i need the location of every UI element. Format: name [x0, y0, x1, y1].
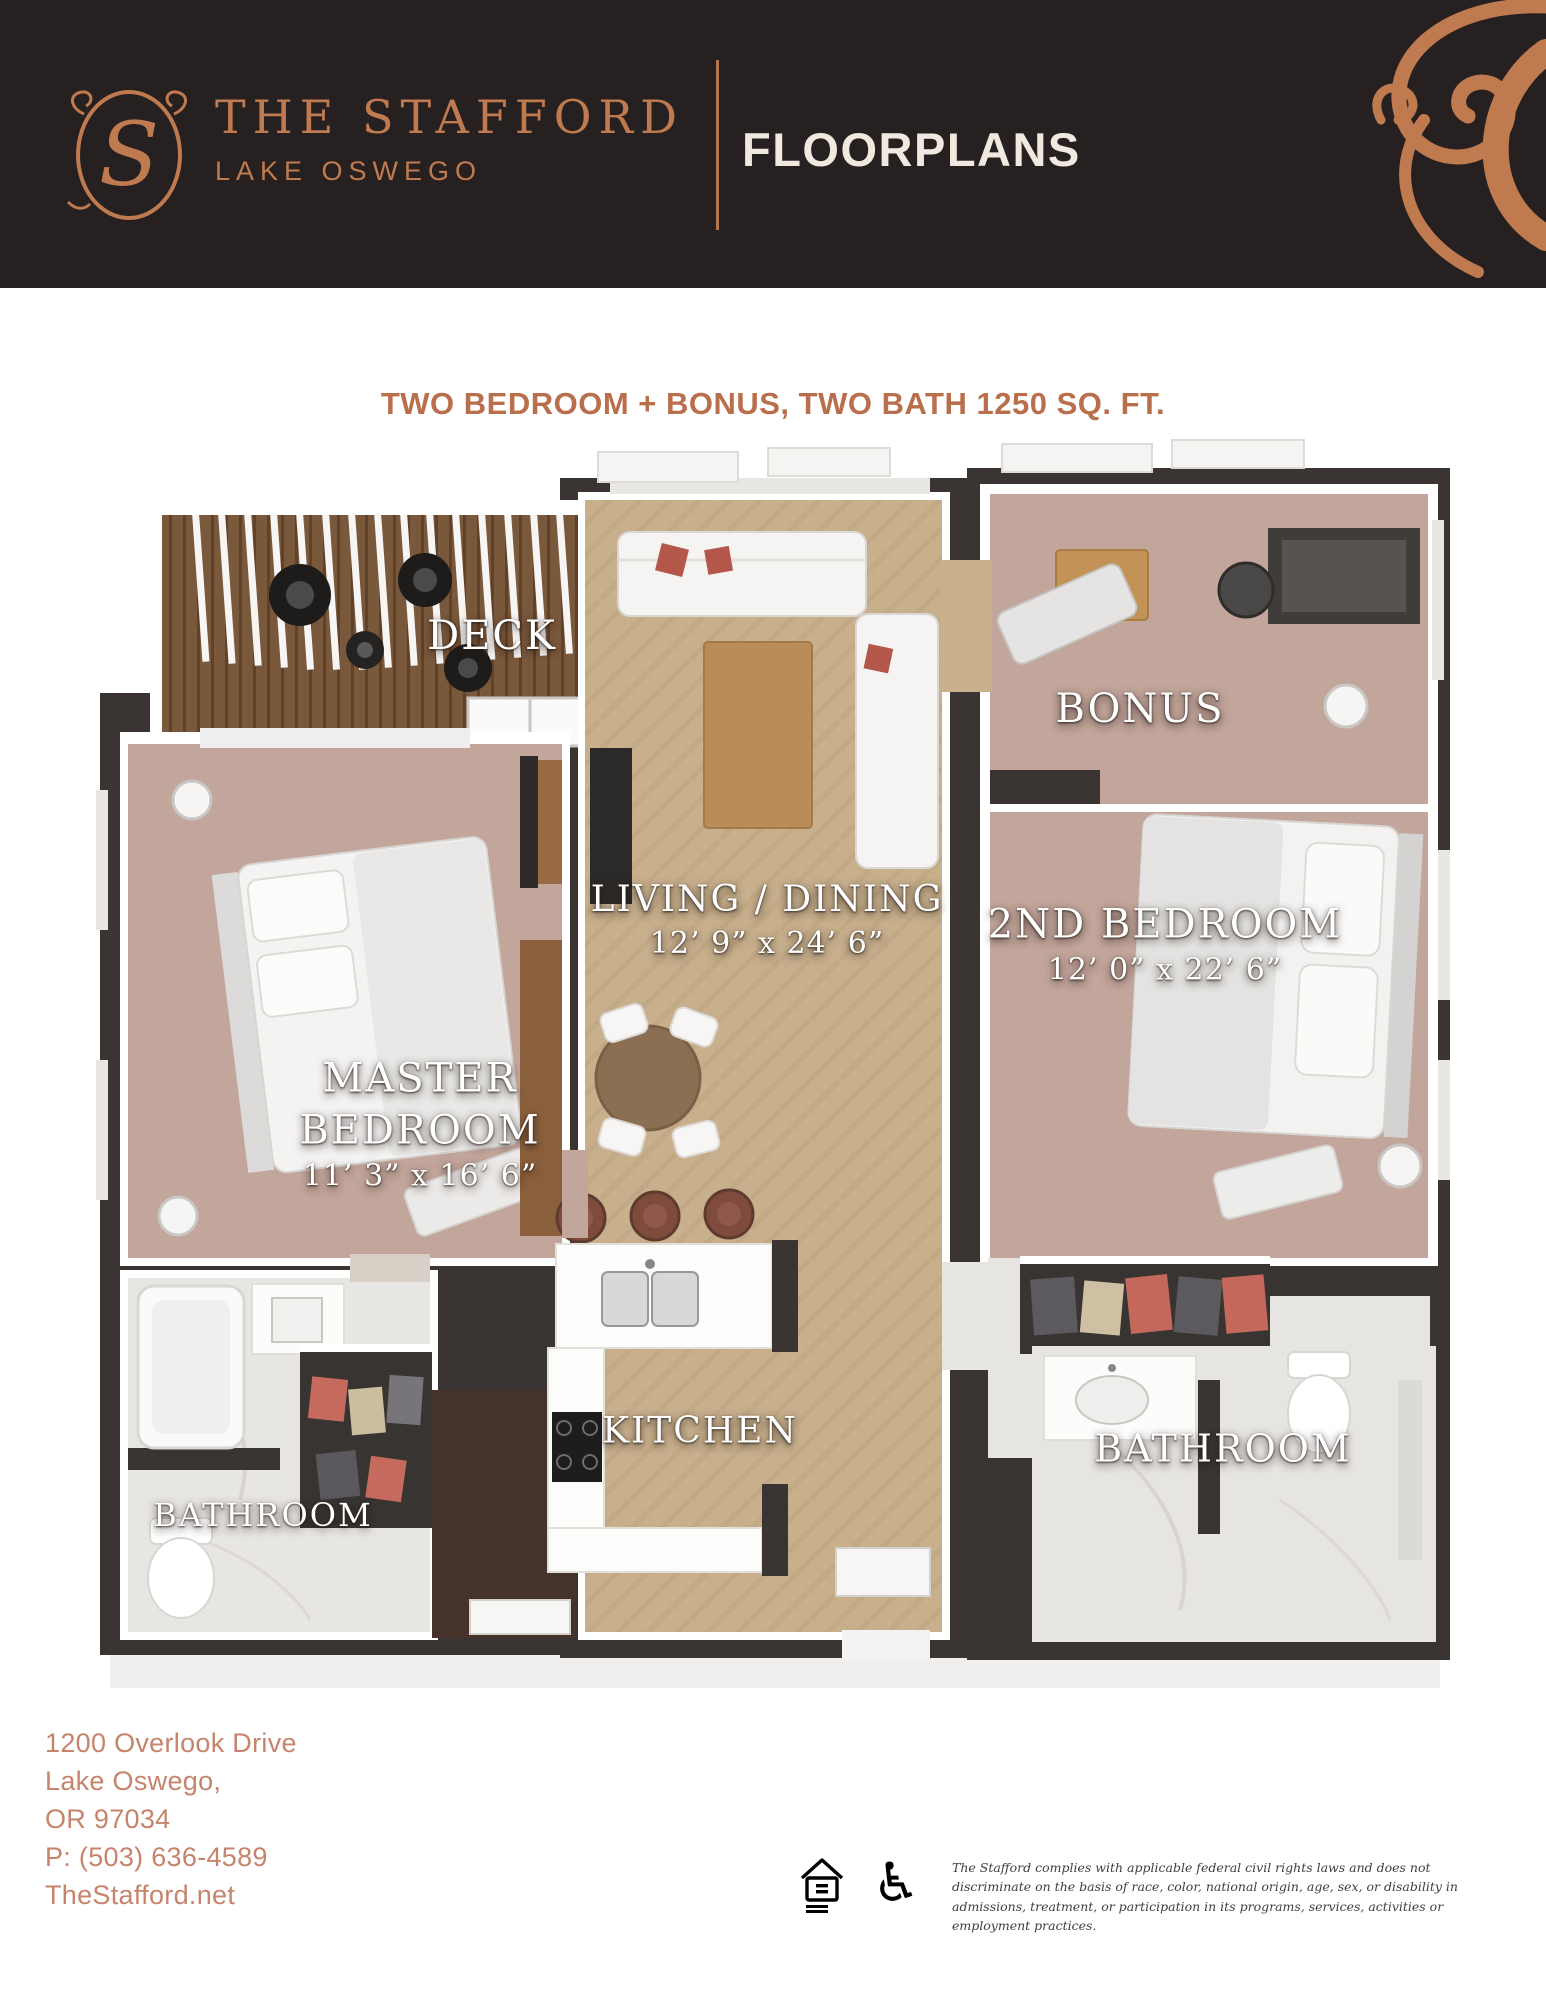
- bath-doorway: [350, 1254, 430, 1282]
- room-name: LIVING / DINING: [591, 877, 944, 924]
- floorplan-image: DECK LIVING / DINING 12’ 9” x 24’ 6” BON…: [0, 0, 1546, 2000]
- room-name: KITCHEN: [602, 1409, 798, 1456]
- room-label-deck: DECK: [427, 610, 557, 662]
- cooktop: [552, 1412, 602, 1482]
- front-door-landing: [836, 1548, 930, 1596]
- website-url: TheStafford.net: [45, 1876, 297, 1914]
- entry-door: [470, 1600, 570, 1634]
- accessibility-icon: ♿: [872, 1856, 920, 1910]
- sofa: [618, 532, 866, 616]
- nightstand-lamp: [173, 781, 211, 819]
- room-name: BATHROOM: [1094, 1424, 1352, 1473]
- living-dining-area: [578, 478, 950, 1640]
- room-label-bonus: BONUS: [1055, 683, 1224, 735]
- room-label-living-dining: LIVING / DINING 12’ 9” x 24’ 6”: [591, 877, 944, 963]
- equal-housing-icon: [798, 1856, 846, 1914]
- media-console: [538, 760, 562, 884]
- room-dimensions: 12’ 0” x 22’ 6”: [1048, 951, 1282, 990]
- nightstand-lamp: [1379, 1145, 1421, 1187]
- compliance-disclaimer: The Stafford complies with applicable fe…: [952, 1858, 1462, 1936]
- room-dimensions: 12’ 9” x 24’ 6”: [650, 924, 884, 963]
- hall-closet: [1020, 1256, 1270, 1354]
- room-label-master-bedroom: MASTER BEDROOM 11’ 3” x 16’ 6”: [285, 1053, 555, 1196]
- office-chair: [1219, 563, 1273, 617]
- address-line: 1200 Overlook Drive: [45, 1724, 297, 1762]
- chaise-sofa: [856, 614, 938, 868]
- room-name: BATHROOM: [153, 1495, 372, 1537]
- room-label-second-bathroom: BATHROOM: [1094, 1424, 1352, 1473]
- phone-number: P: (503) 636-4589: [45, 1838, 297, 1876]
- address-line: Lake Oswego,: [45, 1762, 297, 1800]
- tv-panel: [520, 756, 538, 888]
- nightstand-lamp: [159, 1197, 197, 1235]
- compliance-icons: ♿: [798, 1856, 920, 1914]
- bathroom-vanity: [252, 1284, 344, 1354]
- nightstand-lamp: [1325, 685, 1367, 727]
- master-window: [200, 728, 470, 748]
- room-label-second-bedroom: 2ND BEDROOM 12’ 0” x 22’ 6”: [988, 899, 1343, 990]
- room-name: 2ND BEDROOM: [988, 899, 1343, 951]
- address-block: 1200 Overlook Drive Lake Oswego, OR 9703…: [45, 1724, 297, 1914]
- address-line: OR 97034: [45, 1800, 297, 1838]
- shower-glass: [1398, 1380, 1422, 1560]
- room-dimensions: 11’ 3” x 16’ 6”: [303, 1157, 537, 1196]
- room-name: MASTER BEDROOM: [285, 1053, 555, 1157]
- room-name: BONUS: [1055, 683, 1224, 735]
- room-label-kitchen: KITCHEN: [602, 1409, 798, 1456]
- bonus-area: [980, 484, 1438, 820]
- floorplan-flyer: S THE STAFFORD LAKE OSWEGO FLOORPLANS TW…: [0, 0, 1546, 2000]
- floorplan-render: [0, 0, 1546, 2000]
- bathtub: [138, 1286, 244, 1448]
- room-name: DECK: [427, 610, 557, 662]
- wood-table: [704, 642, 812, 828]
- room-label-master-bathroom: BATHROOM: [153, 1495, 372, 1537]
- master-bathroom-area: [120, 1254, 438, 1640]
